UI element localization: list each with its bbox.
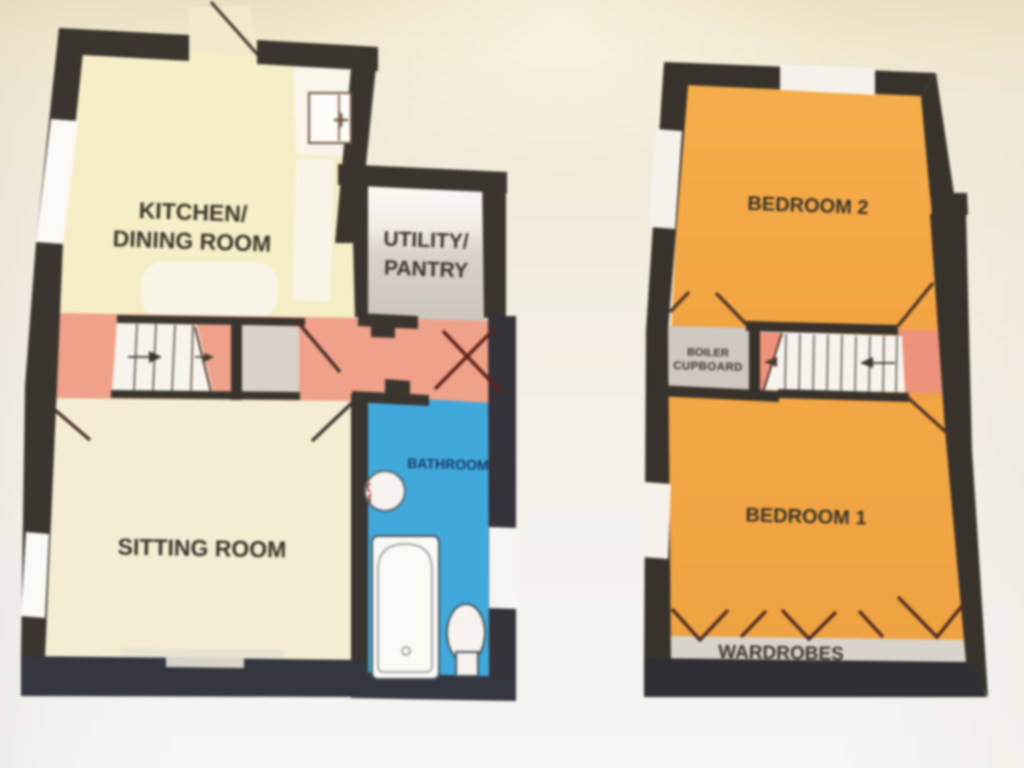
svg-text:BEDROOM 1: BEDROOM 1 [745,504,867,529]
svg-text:DINING ROOM: DINING ROOM [112,225,271,257]
svg-text:UTILITY/: UTILITY/ [383,228,469,254]
svg-text:SITTING ROOM: SITTING ROOM [117,534,286,563]
svg-text:CUPBOARD: CUPBOARD [673,360,743,374]
svg-text:BATHROOM: BATHROOM [407,455,489,473]
svg-text:BOILER: BOILER [687,346,729,359]
svg-text:PANTRY: PANTRY [384,257,469,283]
svg-text:WARDROBES: WARDROBES [718,642,844,665]
svg-text:BEDROOM 2: BEDROOM 2 [747,193,869,219]
svg-text:KITCHEN/: KITCHEN/ [138,197,248,227]
